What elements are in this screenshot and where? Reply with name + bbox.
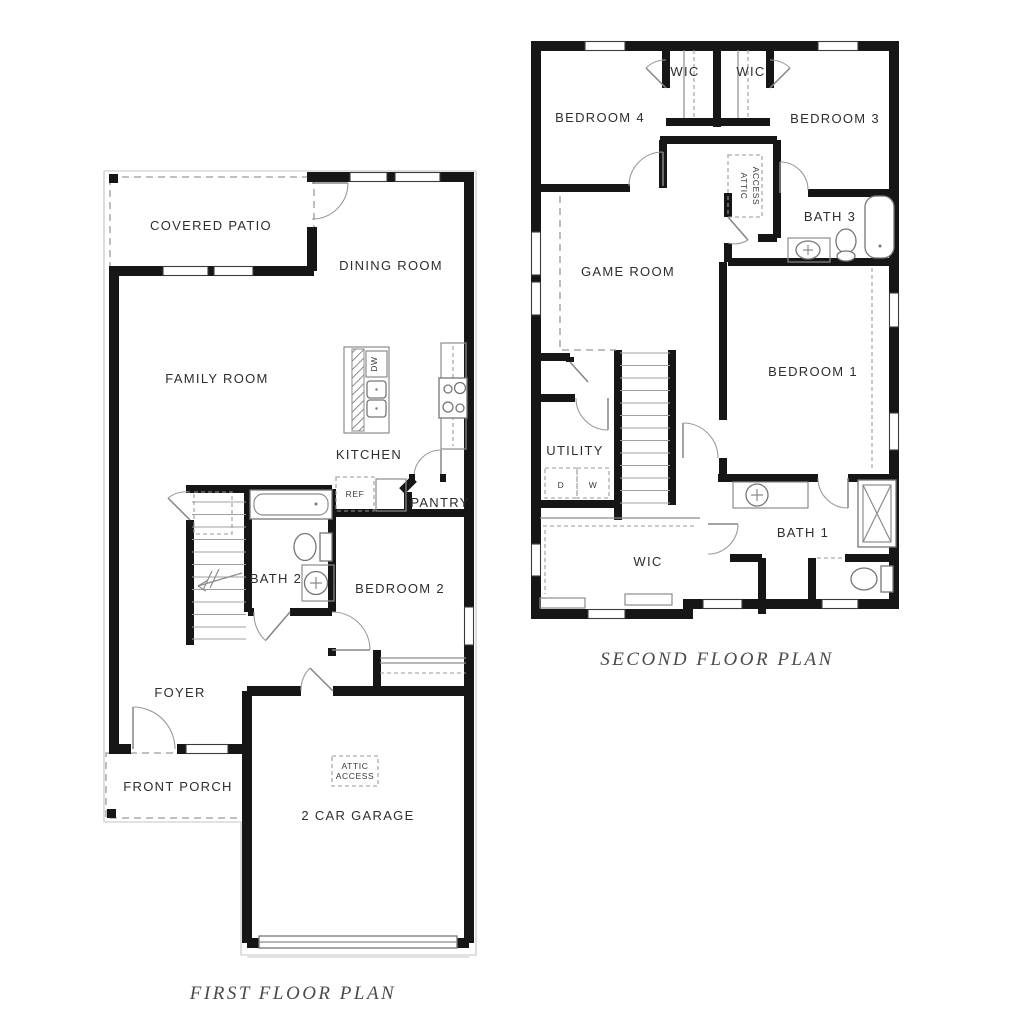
wic-entry-door: [708, 524, 738, 554]
label-game-room: GAME ROOM: [581, 264, 675, 279]
bath3-hall-door: [728, 217, 748, 244]
label-dryer: D: [558, 480, 565, 490]
label-front-porch: FRONT PORCH: [123, 779, 232, 794]
bath1-toilet: [851, 566, 893, 592]
toilet: [294, 533, 332, 561]
exterior-walls: [114, 177, 469, 943]
patio-door: [312, 183, 348, 219]
bath3-toilet: [836, 229, 856, 261]
label-ref: REF: [346, 489, 365, 499]
front-door: [133, 707, 175, 749]
svg-text:ACCESS: ACCESS: [336, 771, 375, 781]
second-floor-plan: ATTIC ACCESS D W WIC WIC: [532, 42, 899, 671]
label-bedroom-3: BEDROOM 3: [790, 111, 880, 126]
bedroom2-door: [332, 612, 370, 650]
exterior-walls-2f: [536, 46, 894, 614]
kitchen-sink: [367, 381, 386, 417]
label-bedroom-2: BEDROOM 2: [355, 581, 445, 596]
patio-column: [109, 174, 118, 183]
utility-door: [576, 398, 608, 430]
kitchen-fixtures: [336, 343, 467, 511]
understair-closet-door: [168, 492, 190, 520]
doors-2f: [570, 60, 848, 558]
bedroom3-door: [780, 162, 808, 193]
pantry-cabinet: [376, 479, 406, 511]
floorplan-sheet: ATTIC ACCESS COVERED PATIO DINING ROOM F…: [0, 0, 1024, 1017]
label-dw: DW: [369, 356, 379, 371]
label-bedroom-4: BEDROOM 4: [555, 110, 645, 125]
label-wic-right: WIC: [736, 64, 765, 79]
svg-text:ACCESS: ACCESS: [751, 167, 761, 206]
label-kitchen: KITCHEN: [336, 447, 402, 462]
label-bath-1: BATH 1: [777, 525, 829, 540]
attic-access-2f: ATTIC ACCESS: [728, 155, 762, 217]
bedroom4-door: [629, 152, 663, 186]
range: [439, 378, 467, 418]
second-floor-title: SECOND FLOOR PLAN: [600, 649, 834, 670]
label-wic-left: WIC: [670, 64, 699, 79]
porch-column: [107, 809, 116, 818]
bedroom1-door: [683, 423, 718, 458]
label-covered-patio: COVERED PATIO: [150, 218, 272, 233]
label-pantry: PANTRY: [410, 495, 469, 510]
garage-attic-access: ATTIC ACCESS: [332, 756, 378, 786]
bath2-door: [254, 612, 290, 641]
garage-door: [247, 936, 469, 957]
stair-direction-arrow: [198, 569, 242, 591]
bedroom2-closet: [380, 658, 466, 673]
label-utility: UTILITY: [546, 443, 604, 458]
bath1-door: [818, 478, 848, 508]
label-wic: WIC: [633, 554, 662, 569]
label-garage: 2 CAR GARAGE: [301, 808, 414, 823]
bath3-fixtures: [788, 196, 894, 262]
bath3-tub: [865, 196, 894, 258]
kitchen-counter: [439, 343, 467, 449]
roof-outline: [104, 171, 476, 955]
pantry-door: [409, 450, 446, 482]
first-floor-title: FIRST FLOOR PLAN: [189, 983, 396, 1004]
label-bath-3: BATH 3: [804, 209, 856, 224]
windows-2f: [532, 42, 899, 619]
shower: [858, 480, 896, 547]
utility-closet-door: [570, 362, 588, 382]
utility-fixtures: D W: [545, 468, 609, 498]
floorplan-drawing: ATTIC ACCESS COVERED PATIO DINING ROOM F…: [0, 0, 1024, 1017]
stairs: [192, 492, 246, 639]
label-bath-2: BATH 2: [250, 571, 302, 586]
kitchen-island: [344, 347, 389, 433]
label-bedroom-1: BEDROOM 1: [768, 364, 858, 379]
bath1-sink: [733, 482, 808, 508]
garage-entry-door: [301, 668, 333, 691]
first-floor-plan: ATTIC ACCESS COVERED PATIO DINING ROOM F…: [104, 171, 476, 1004]
stairs-2f: [620, 353, 670, 503]
label-washer: W: [589, 480, 598, 490]
label-family-room: FAMILY ROOM: [165, 371, 268, 386]
svg-text:ATTIC: ATTIC: [739, 173, 749, 200]
bathtub: [250, 490, 332, 519]
label-foyer: FOYER: [154, 685, 205, 700]
attic-access-label: ATTIC: [342, 761, 369, 771]
interior-walls-2f: [536, 42, 894, 614]
label-dining-room: DINING ROOM: [339, 258, 443, 273]
